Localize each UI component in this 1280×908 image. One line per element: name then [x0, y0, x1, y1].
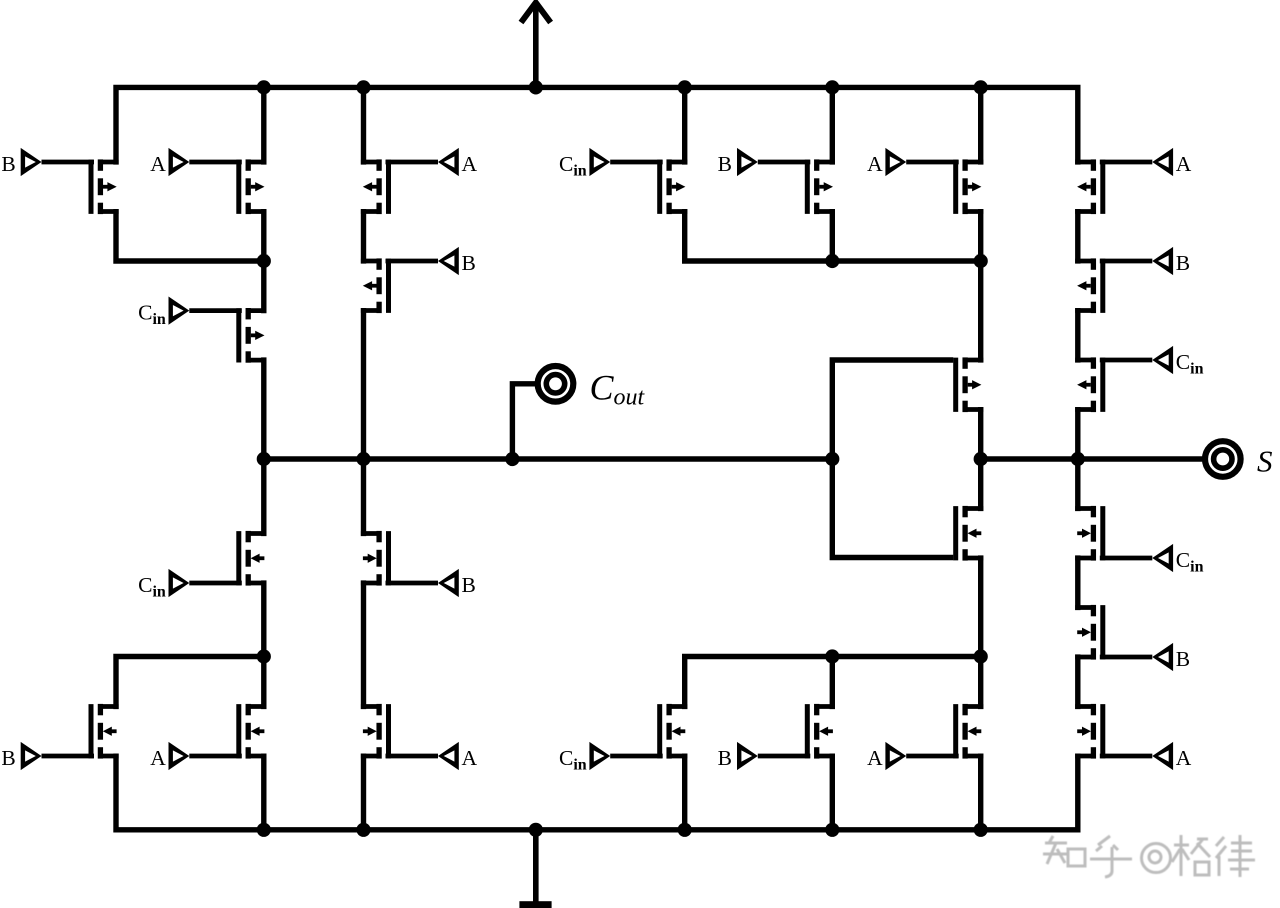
svg-text:A: A: [1176, 746, 1192, 770]
svg-text:A: A: [867, 746, 883, 770]
svg-text:B: B: [462, 573, 476, 597]
svg-text:A: A: [150, 152, 166, 176]
svg-text:B: B: [1, 746, 15, 770]
svg-text:B: B: [1, 152, 15, 176]
svg-text:B: B: [718, 746, 732, 770]
svg-text:A: A: [462, 152, 478, 176]
svg-text:B: B: [1176, 647, 1190, 671]
svg-text:A: A: [150, 746, 166, 770]
svg-text:B: B: [718, 152, 732, 176]
svg-text:A: A: [462, 746, 478, 770]
svg-text:B: B: [1176, 251, 1190, 275]
svg-text:A: A: [1176, 152, 1192, 176]
svg-text:A: A: [867, 152, 883, 176]
svg-text:B: B: [462, 251, 476, 275]
svg-text:S: S: [1257, 444, 1273, 479]
